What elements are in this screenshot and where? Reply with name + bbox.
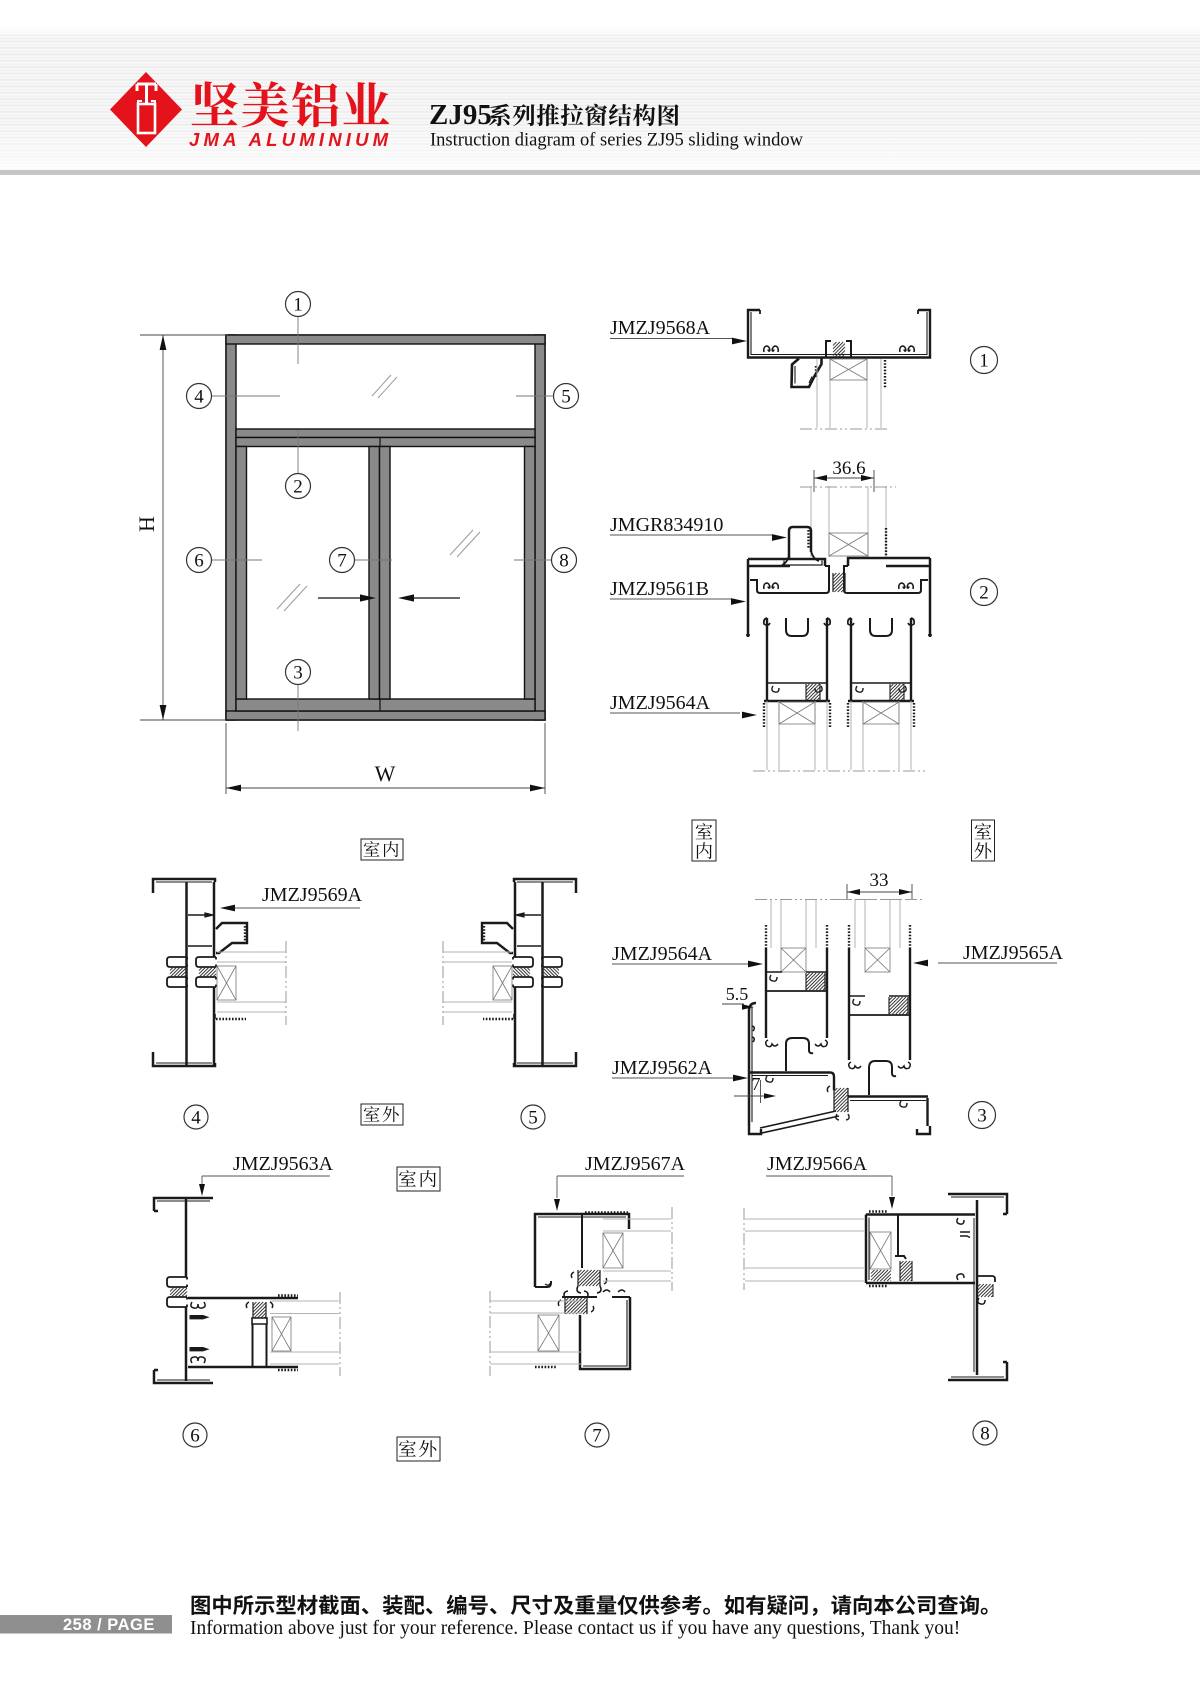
svg-text:36.6: 36.6 (832, 458, 865, 479)
svg-text:7: 7 (592, 1426, 602, 1447)
svg-text:Information above just for you: Information above just for your referenc… (190, 1618, 960, 1639)
svg-text:ZJ95: ZJ95 (429, 99, 492, 131)
svg-text:JMZJ9566A: JMZJ9566A (767, 1153, 868, 1175)
svg-text:258 / PAGE: 258 / PAGE (63, 1616, 155, 1634)
svg-text:JMA ALUMINIUM: JMA ALUMINIUM (189, 129, 392, 150)
svg-text:7: 7 (337, 551, 347, 572)
svg-text:JMZJ9567A: JMZJ9567A (585, 1153, 686, 1175)
svg-text:33: 33 (870, 870, 889, 891)
svg-text:5: 5 (561, 387, 571, 408)
svg-text:JMZJ9568A: JMZJ9568A (610, 317, 711, 339)
svg-text:3: 3 (293, 663, 303, 684)
svg-text:4: 4 (194, 387, 204, 408)
svg-text:7: 7 (752, 1074, 761, 1094)
svg-text:JMZJ9569A: JMZJ9569A (262, 884, 363, 906)
svg-text:JMZJ9561B: JMZJ9561B (610, 578, 709, 600)
svg-text:6: 6 (190, 1426, 200, 1447)
svg-text:5: 5 (528, 1108, 538, 1129)
svg-text:6: 6 (194, 551, 204, 572)
svg-text:2: 2 (293, 477, 303, 498)
svg-text:3: 3 (977, 1106, 987, 1127)
svg-text:JMZJ9564A: JMZJ9564A (612, 943, 713, 965)
svg-text:1: 1 (293, 295, 303, 316)
svg-text:JMZJ9565A: JMZJ9565A (963, 942, 1064, 964)
svg-text:4: 4 (191, 1108, 201, 1129)
svg-text:Instruction diagram of series: Instruction diagram of series ZJ95 slidi… (430, 131, 804, 151)
svg-text:H: H (134, 516, 159, 532)
svg-text:W: W (375, 761, 396, 786)
svg-text:1: 1 (979, 351, 989, 372)
svg-text:JMZJ9562A: JMZJ9562A (612, 1057, 713, 1079)
svg-text:2: 2 (979, 583, 989, 604)
svg-text:JMZJ9564A: JMZJ9564A (610, 692, 711, 714)
svg-text:5.5: 5.5 (726, 984, 749, 1004)
svg-text:8: 8 (559, 551, 569, 572)
svg-text:JMZJ9563A: JMZJ9563A (233, 1153, 334, 1175)
svg-text:8: 8 (980, 1424, 990, 1445)
svg-text:JMGR834910: JMGR834910 (610, 514, 723, 536)
